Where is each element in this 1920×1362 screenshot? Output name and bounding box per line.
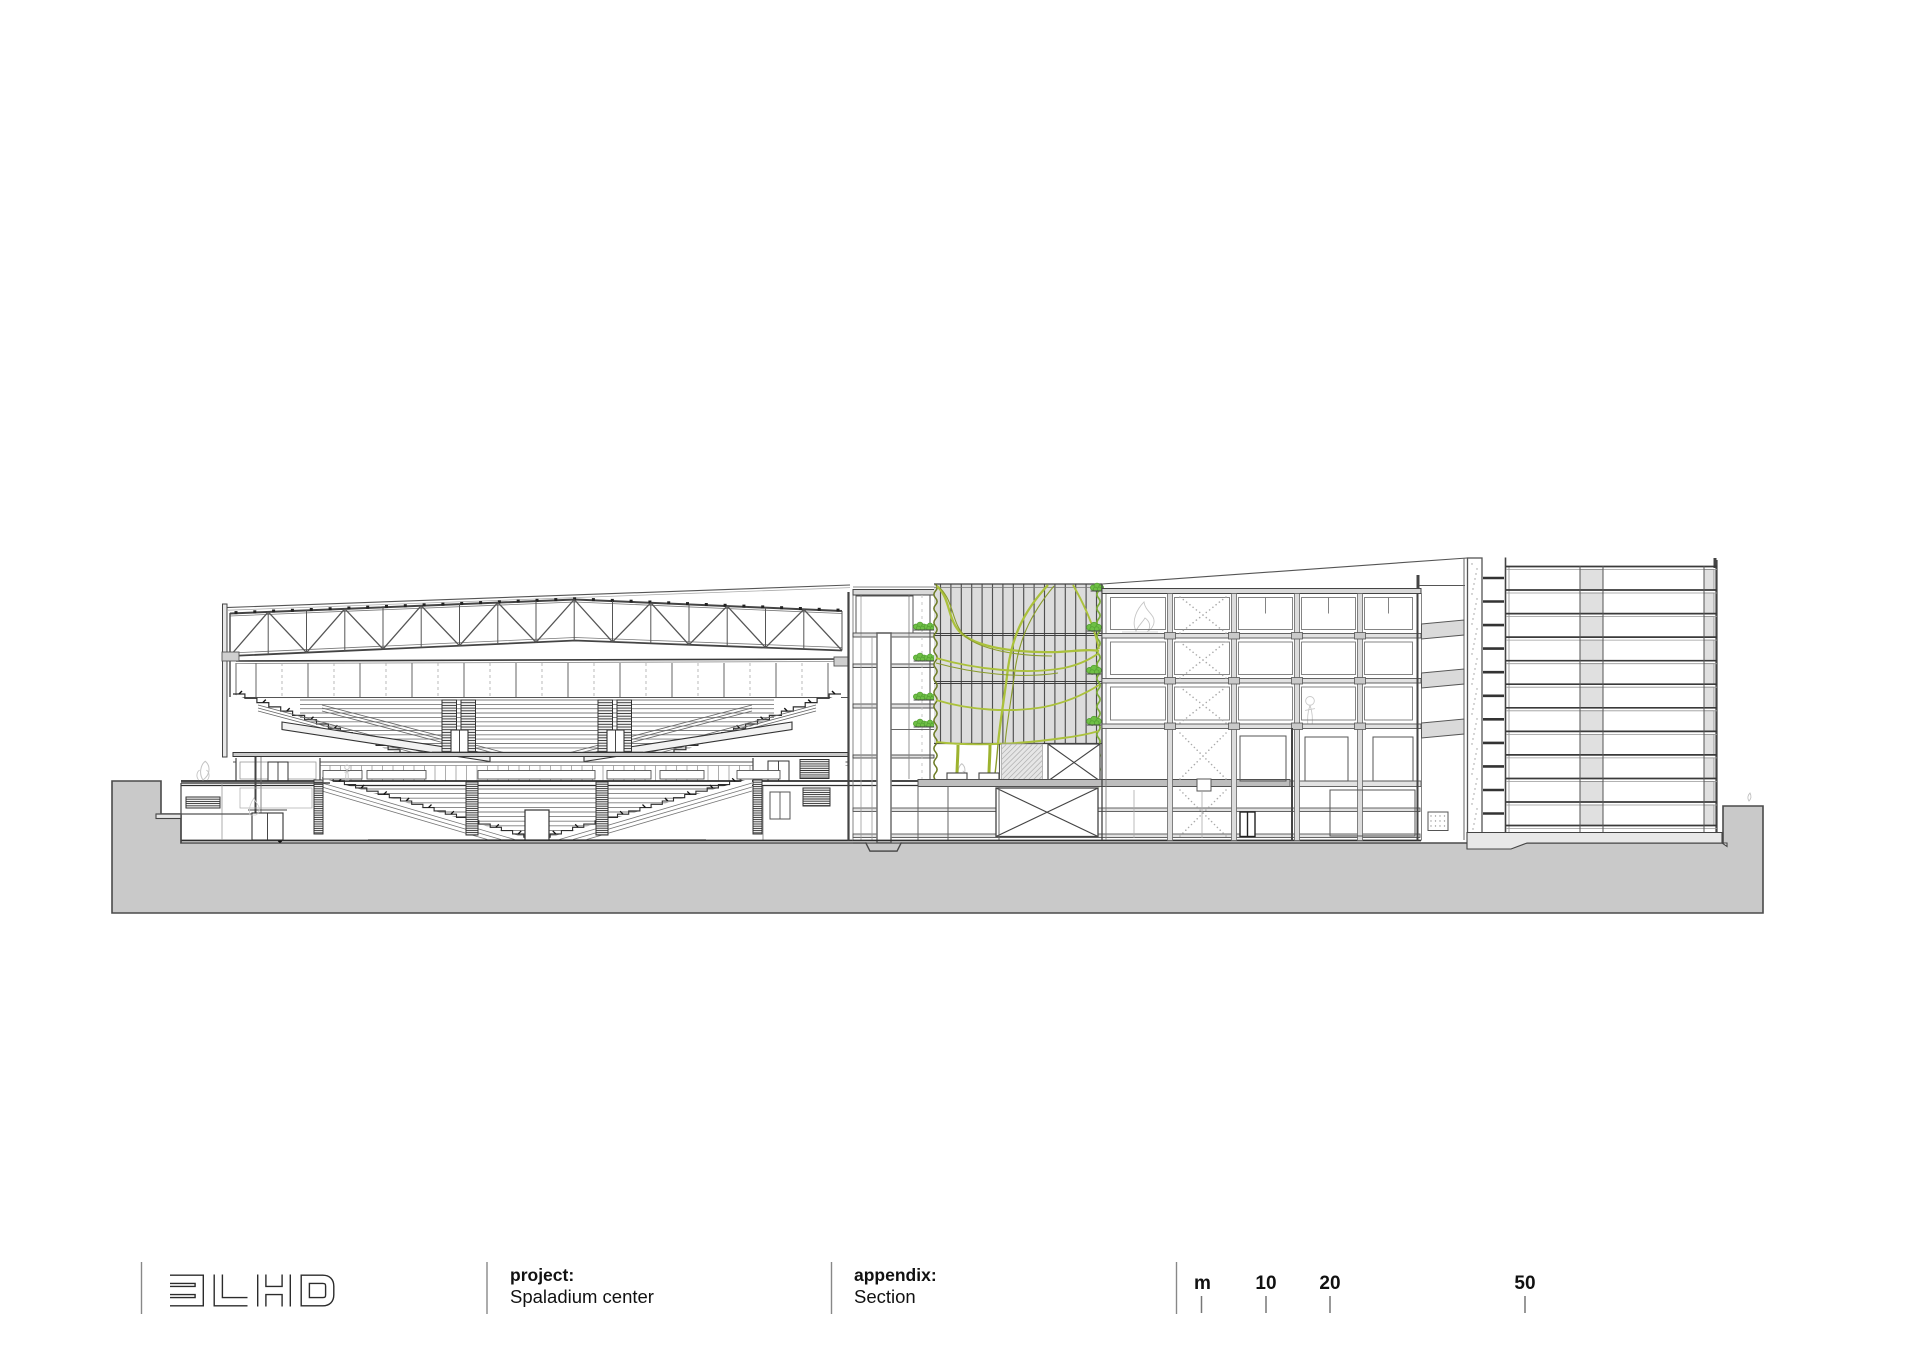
svg-text:10: 10	[1255, 1273, 1276, 1294]
svg-text:m: m	[1194, 1273, 1211, 1294]
svg-text:project:: project:	[510, 1265, 574, 1285]
svg-text:20: 20	[1319, 1273, 1340, 1294]
svg-text:Section: Section	[854, 1286, 916, 1307]
svg-text:Spaladium center: Spaladium center	[510, 1286, 654, 1307]
svg-text:50: 50	[1514, 1273, 1535, 1294]
svg-text:appendix:: appendix:	[854, 1265, 937, 1285]
